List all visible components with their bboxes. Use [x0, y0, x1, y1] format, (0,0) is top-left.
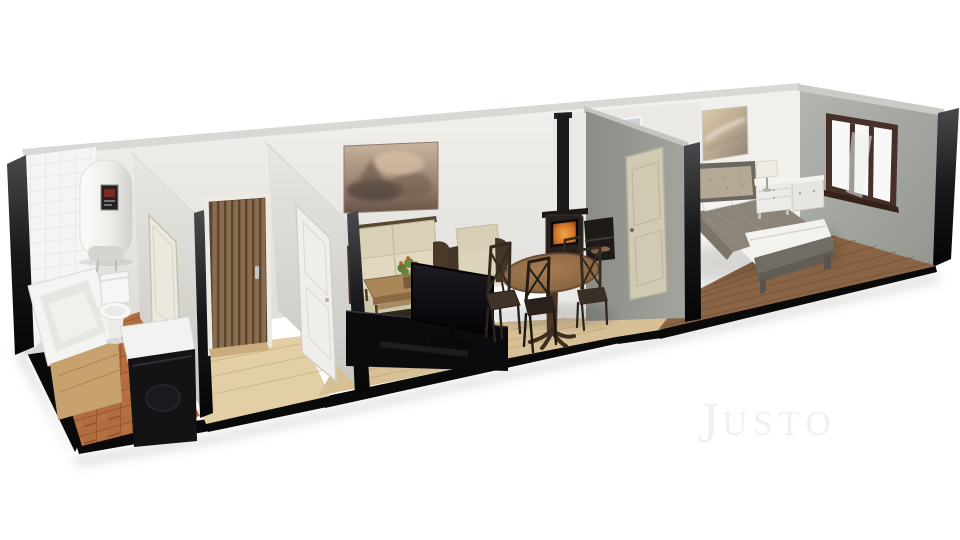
lamp-shade — [756, 160, 778, 178]
watermark-rest: USTO — [722, 404, 837, 443]
door-knob — [325, 298, 329, 302]
landscape-painting — [344, 142, 438, 213]
heater-label — [101, 185, 118, 210]
headboard — [692, 161, 757, 203]
dresser — [791, 175, 824, 211]
door-knob — [630, 228, 634, 232]
bedroom-window — [824, 113, 899, 213]
watermark-initial: J — [697, 390, 720, 455]
washer-door — [146, 385, 180, 411]
bed-leg — [760, 279, 766, 294]
partition-cut-edge — [684, 142, 701, 322]
bed-leg — [824, 255, 831, 270]
entry-door-handle — [255, 266, 259, 279]
apartment-3d-scene: J USTO — [0, 0, 960, 540]
bedroom-artwork — [702, 106, 748, 161]
floorplan-render: J USTO — [0, 0, 960, 540]
tv-stand — [449, 322, 456, 339]
stove-flue-pipe — [557, 114, 569, 222]
hallway — [204, 193, 272, 358]
